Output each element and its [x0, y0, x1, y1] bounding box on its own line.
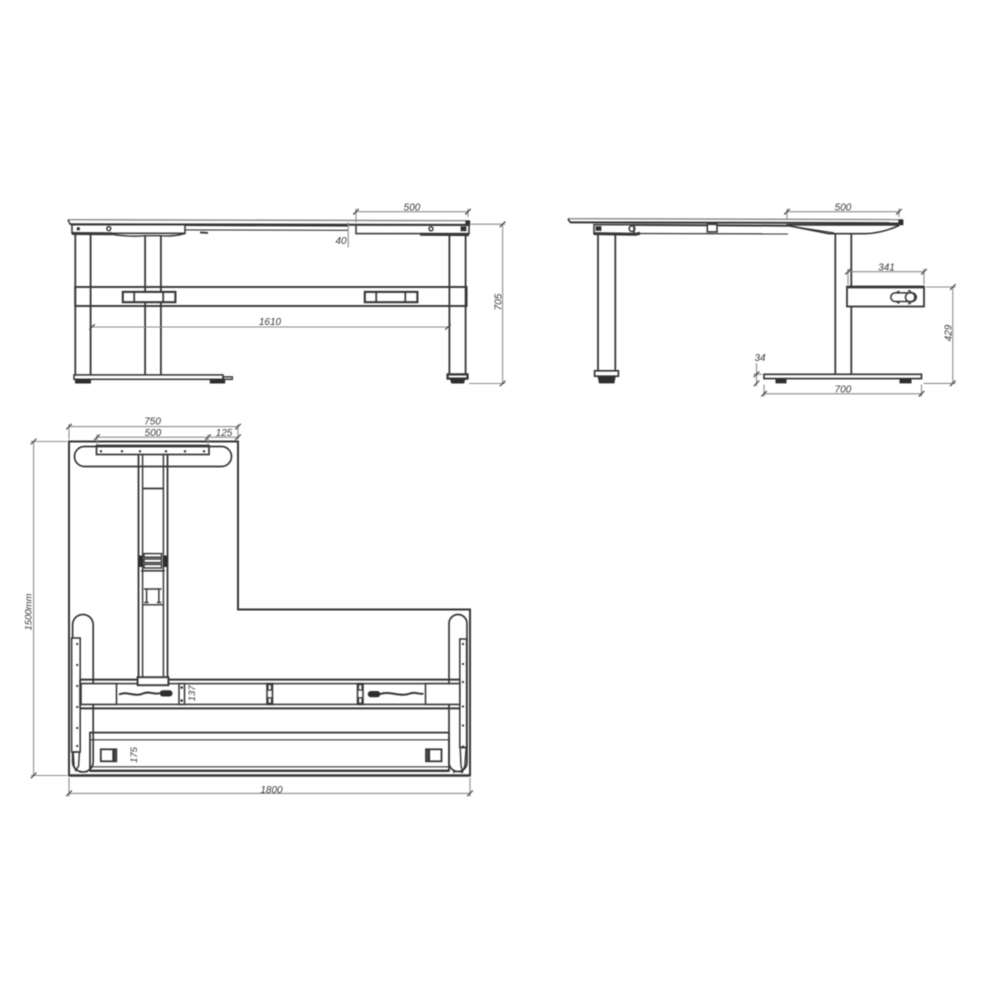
svg-text:1610: 1610	[259, 317, 282, 328]
svg-text:40: 40	[335, 236, 347, 247]
svg-text:700: 700	[835, 385, 852, 396]
svg-text:34: 34	[754, 353, 766, 364]
svg-text:137: 137	[187, 685, 198, 702]
svg-text:1800: 1800	[260, 785, 283, 796]
svg-text:705: 705	[493, 293, 504, 310]
svg-text:429: 429	[944, 324, 955, 341]
svg-text:500: 500	[404, 203, 421, 214]
svg-text:1500mm: 1500mm	[23, 593, 34, 630]
svg-text:500: 500	[145, 428, 162, 439]
svg-text:750: 750	[144, 416, 161, 427]
svg-text:341: 341	[878, 263, 895, 274]
svg-text:500: 500	[835, 203, 852, 214]
svg-text:175: 175	[129, 746, 140, 763]
svg-text:125: 125	[216, 428, 233, 439]
